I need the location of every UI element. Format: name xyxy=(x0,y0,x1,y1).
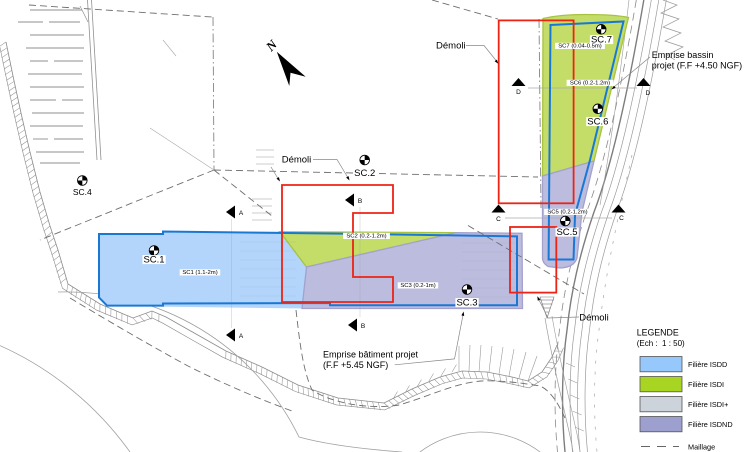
svg-text:SC5 (0.2-1.2m): SC5 (0.2-1.2m) xyxy=(547,210,587,216)
svg-text:SC.2: SC.2 xyxy=(354,168,375,179)
svg-text:SC.6: SC.6 xyxy=(587,117,608,128)
svg-text:SC.1: SC.1 xyxy=(143,255,164,266)
svg-text:A: A xyxy=(239,333,244,340)
svg-text:SC3 (0.2-1m): SC3 (0.2-1m) xyxy=(400,283,435,289)
svg-text:LEGENDE: LEGENDE xyxy=(637,328,679,338)
svg-text:C: C xyxy=(619,215,624,222)
svg-text:Filière ISDD: Filière ISDD xyxy=(688,360,727,369)
svg-text:D: D xyxy=(516,89,521,96)
svg-text:SC2 (0.2-1.2m): SC2 (0.2-1.2m) xyxy=(346,234,386,240)
svg-text:Maillage: Maillage xyxy=(688,443,715,452)
svg-text:SC6 (0.2-1.2m): SC6 (0.2-1.2m) xyxy=(570,81,610,87)
svg-text:Démoli: Démoli xyxy=(579,313,609,324)
svg-text:C: C xyxy=(496,216,501,223)
svg-text:Démoli: Démoli xyxy=(282,155,312,166)
svg-text:Emprise bassin: Emprise bassin xyxy=(652,50,714,60)
svg-text:A: A xyxy=(239,210,244,217)
svg-text:(F.F +5.45 NGF): (F.F +5.45 NGF) xyxy=(323,360,388,370)
svg-text:SC.5: SC.5 xyxy=(556,227,577,238)
svg-text:Filière ISDND: Filière ISDND xyxy=(688,420,733,429)
svg-text:B: B xyxy=(358,198,362,205)
svg-text:projet (F.F +4.50 NGF): projet (F.F +4.50 NGF) xyxy=(652,61,742,71)
svg-text:Emprise bâtiment projet: Emprise bâtiment projet xyxy=(323,350,419,360)
svg-text:SC.3: SC.3 xyxy=(456,298,477,309)
svg-text:SC7 (0.04-0.5m): SC7 (0.04-0.5m) xyxy=(558,44,602,50)
svg-text:Démoli: Démoli xyxy=(436,41,466,52)
svg-text:(Ech : 1 : 50): (Ech : 1 : 50) xyxy=(637,339,685,348)
svg-text:Filière ISDI: Filière ISDI xyxy=(688,380,724,389)
svg-text:SC.4: SC.4 xyxy=(73,187,92,197)
svg-text:B: B xyxy=(361,323,365,330)
svg-text:D: D xyxy=(646,90,651,97)
svg-text:SC1 (1.1-2m): SC1 (1.1-2m) xyxy=(182,270,217,276)
svg-text:Filière ISDI+: Filière ISDI+ xyxy=(688,400,728,409)
